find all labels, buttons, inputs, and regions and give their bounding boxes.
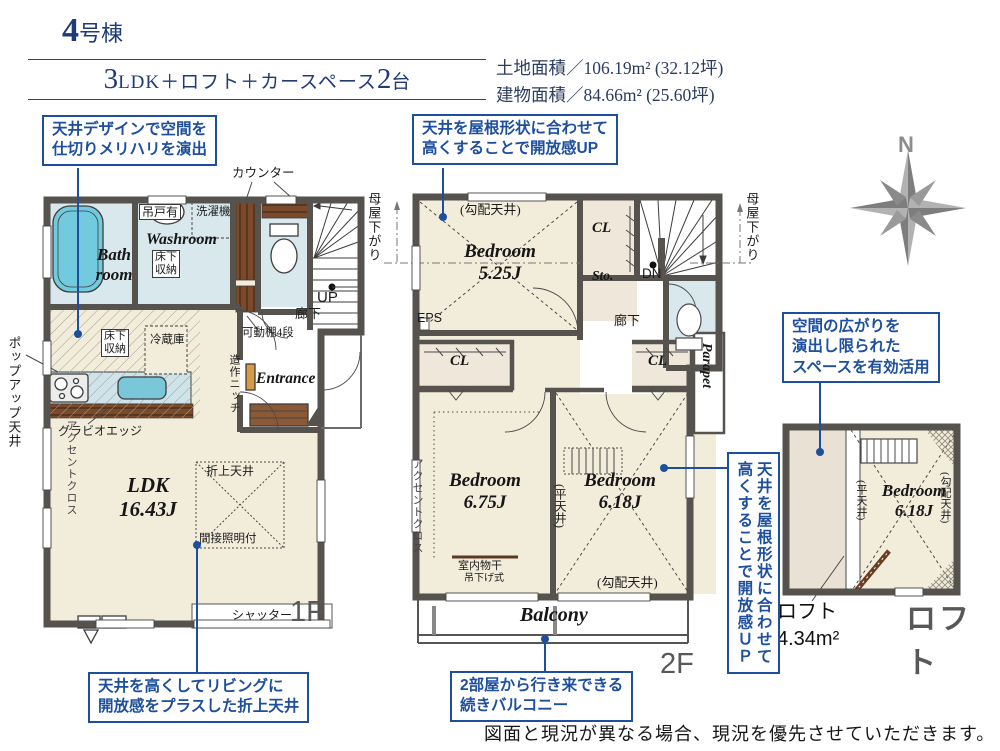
loft-area-label: ロフト 4.34m² [777,599,839,653]
plan-summary: 3LDK＋ロフト＋カースペース2台 [28,63,486,96]
f2-floor-label: 2F [660,648,694,681]
f1-bathroom-label: Bath room [82,245,146,284]
f2-parapet-label: Parapet [698,343,714,388]
land-area: 土地面積／106.19m² (32.12坪) [496,55,723,82]
building-area: 建物面積／84.66m² (25.60坪) [496,82,723,109]
f1-counter-label: カウンター [232,166,295,181]
callout-loft-space: 空間の広がりを 演出し限られた スペースを有効活用 [782,312,940,383]
f2-flat-ceiling-label: (平天井) [553,484,567,528]
f2-closet-right-label: CL [648,353,667,370]
callout-balcony: 2部屋から行き来できる 続きバルコニー [450,671,633,722]
disclaimer-text: 図面と現況が異なる場合、現況を優先させていただきます。 [484,720,995,746]
f1-fridge-label: 冷蔵庫 [150,334,185,348]
f1-washroom-label: Washroom [146,231,217,249]
building-suffix: 号棟 [79,21,123,46]
f1-underfloor-storage-washroom: 床下 収納 [152,250,180,278]
building-title: 4号棟 [62,12,123,50]
f1-ldk-label: LDK 16.43J [108,473,188,521]
plan-car-suffix: 台 [391,72,410,93]
callout-roof-height-vertical: 天井を屋根形状に合わせて 高くすることで開放感ＵＰ [727,452,780,674]
f1-underfloor-storage-kitchen: 床下 収納 [101,329,129,357]
compass-north-label: N [898,132,914,158]
header-rule-top [28,59,486,60]
loft-title-label: ロフト [906,594,1000,682]
plan-car-number: 2 [377,63,392,95]
f1-indirect-light-label: 間接照明付 [199,533,257,547]
f2-sloped-ceiling-top-label: (勾配天井) [460,202,521,217]
f1-shelf-label: 可動棚4段 [242,327,294,341]
compass-icon [850,150,966,266]
f2-closet-left-label: CL [450,353,469,370]
f1-coffered-ceiling-label: 折上天井 [206,464,254,478]
plan-ldk-text: LDK＋ロフト＋カースペース [118,72,377,93]
f2-accent-cloth-label: アクセントクロス [410,458,423,554]
area-info: 土地面積／106.19m² (32.12坪) 建物面積／84.66m² (25.… [496,55,723,109]
f2-bedroom1-label: Bedroom 5.25J [455,241,545,285]
f2-eps-label: EPS [417,311,442,326]
callout-living-ceiling: 天井を高くしてリビングに 開放感をプラスした折上天井 [88,672,309,723]
floorplan-page: 4号棟 3LDK＋ロフト＋カースペース2台 土地面積／106.19m² (32.… [0,0,1000,751]
f2-stairs-dn-label: DN [642,266,662,282]
f2-balcony-label: Balcony [520,604,588,627]
loft-sloped-ceiling-label: (勾配天井) [938,472,951,523]
f2-bedroom2-label: Bedroom 6.75J [440,470,530,514]
f2-storage-label: Sto. [592,268,613,284]
f1-washer-label: 洗濯機 [196,206,231,220]
f1-niche-label: 造作ニッチ [227,354,240,414]
loft-flat-ceiling-label: (平天井) [854,480,867,520]
f1-entrance-label: Entrance [256,370,315,388]
f1-popup-ceiling-label: ポップアップ天井 [6,336,21,448]
callout-ceiling-design: 天井デザインで空間を 仕切りメリハリを演出 [42,115,217,166]
f2-bedroom3-label: Bedroom 6.18J [575,470,665,514]
building-number: 4 [62,12,79,49]
f2-moya-right-label: 母屋下がり [744,192,759,262]
f2-sloped-ceiling-bottom-label: (勾配天井) [597,575,658,590]
header-rule-bottom [28,99,486,100]
f2-moya-left-label: 母屋下がり [366,192,381,262]
f2-drying-sub-label: 吊下げ式 [464,573,504,585]
f1-hanging-cabinet-label: 吊戸有 [139,204,181,220]
f1-hallway-label: 廊下 [295,306,321,321]
f1-stairs-up-label: UP [317,289,338,307]
f1-floor-label: 1F [290,596,324,629]
f1-accent-cloth-label: アクセントクロス [64,420,77,516]
plan-ldk-number: 3 [104,63,119,95]
f2-hallway-label: 廊下 [614,313,640,328]
f2-closet-top-label: CL [592,220,611,237]
callout-roof-height-2f: 天井を屋根形状に合わせて 高くすることで開放感UP [412,114,618,165]
f2-drying-label: 室内物干 [458,560,502,573]
